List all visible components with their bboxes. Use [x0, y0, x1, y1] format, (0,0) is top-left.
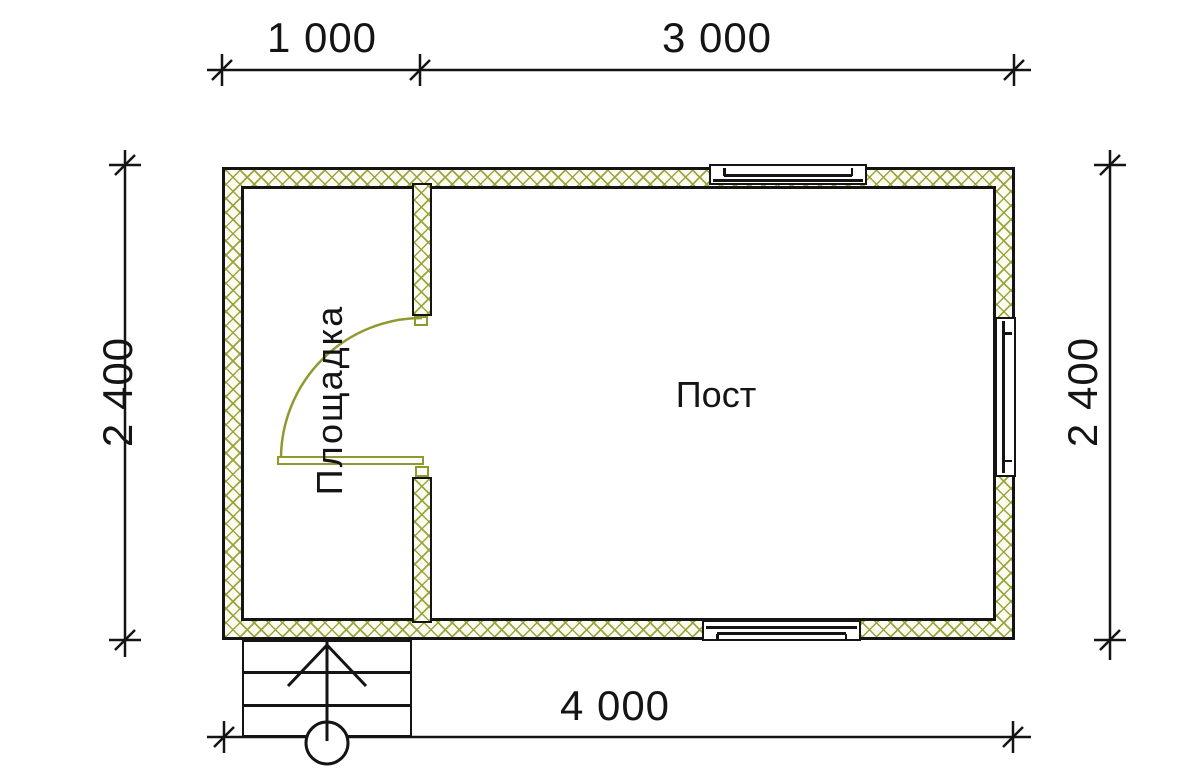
window-frame-tick [1005, 460, 1012, 463]
dimension-tick [1004, 60, 1024, 80]
room-label-ploshchadka: Площадка [309, 290, 353, 510]
dimension-tick [410, 60, 430, 80]
dimension-tick [1100, 630, 1120, 650]
entrance-steps [242, 640, 412, 737]
step-tread [244, 704, 410, 707]
door-jamb-bottom [415, 466, 429, 477]
window-frame-tick [845, 634, 848, 641]
dimension-label-right: 2 400 [1059, 282, 1105, 502]
window-right-wall [995, 317, 1016, 477]
dimension-label-top-left: 1 000 [222, 14, 422, 62]
window-mullion [1002, 321, 1005, 473]
dimension-label-left: 2 400 [94, 282, 140, 502]
dimension-label-bottom: 4 000 [515, 682, 715, 730]
floor-plan-canvas: VANDA [0, 0, 1200, 772]
dimension-tick [1003, 727, 1023, 747]
partition-wall-lower [412, 477, 432, 623]
window-mullion [713, 179, 863, 182]
dimension-tick [214, 727, 234, 747]
window-frame-tick [1005, 332, 1012, 335]
window-mullion [706, 626, 857, 629]
door-jamb-top [414, 316, 428, 326]
dimension-label-top-right: 3 000 [617, 14, 817, 62]
window-top-wall [709, 164, 867, 185]
window-mullion [724, 174, 852, 177]
window-mullion [717, 632, 846, 635]
partition-wall-upper [412, 183, 432, 316]
step-tread [244, 671, 410, 674]
room-label-post: Пост [616, 374, 816, 416]
window-frame-tick [716, 634, 719, 641]
dimension-tick [115, 630, 135, 650]
dimension-tick [115, 155, 135, 175]
window-bottom-wall [702, 620, 861, 641]
dimension-tick [212, 60, 232, 80]
dimension-tick [1100, 155, 1120, 175]
